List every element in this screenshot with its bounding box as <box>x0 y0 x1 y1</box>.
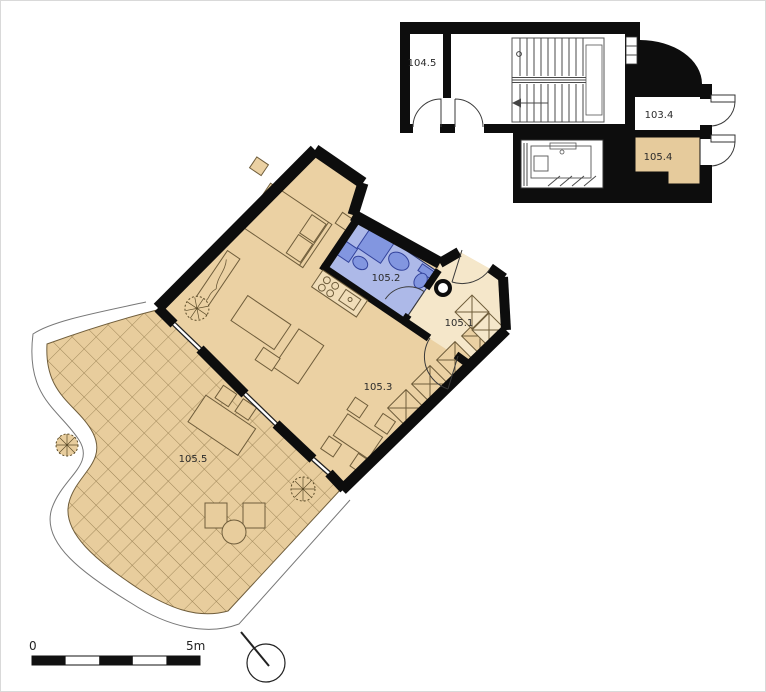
floor-plan-page: 104.5 103.4 105.4 105.5 <box>0 0 766 692</box>
plant-icon <box>291 477 315 501</box>
scale-start-label: 0 <box>29 639 37 653</box>
label-105-4: 105.4 <box>644 152 673 163</box>
label-103-4: 103.4 <box>645 110 674 121</box>
stair-window-icon <box>626 37 637 64</box>
label-105-3: 105.3 <box>364 382 393 393</box>
floor-plan-svg: 104.5 103.4 105.4 105.5 <box>0 0 766 692</box>
label-105-1: 105.1 <box>445 318 474 329</box>
label-105-5: 105.5 <box>179 454 208 465</box>
scale-end-label: 5m <box>186 639 205 653</box>
label-104-5: 104.5 <box>408 58 437 69</box>
stairs-icon <box>512 38 604 122</box>
label-105-2: 105.2 <box>372 273 401 284</box>
elevator-icon <box>521 140 603 188</box>
plant-icon <box>56 434 78 456</box>
